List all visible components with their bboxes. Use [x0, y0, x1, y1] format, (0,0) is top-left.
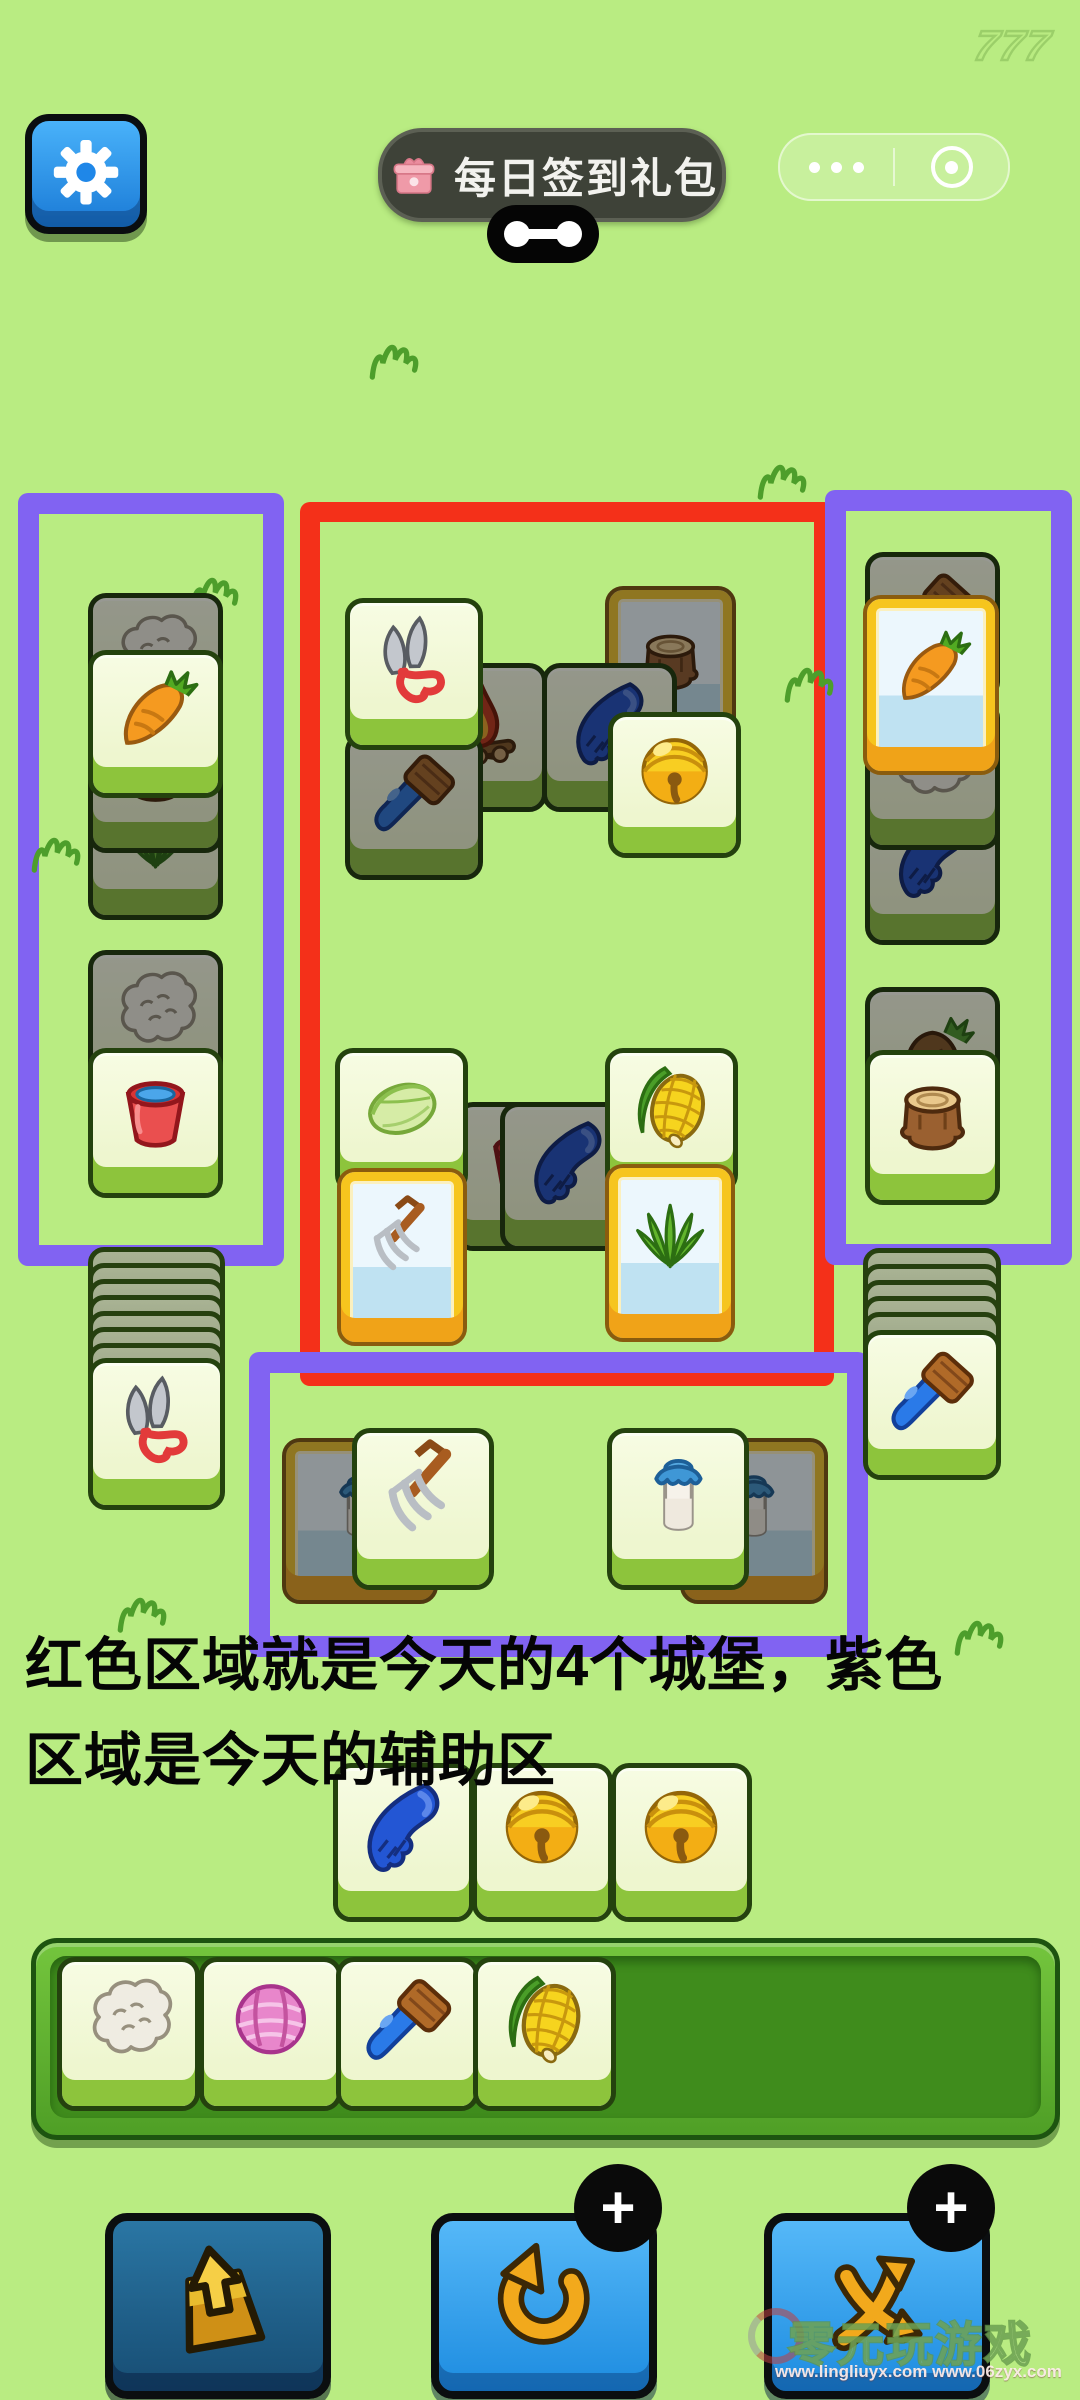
gear-icon: [45, 132, 127, 213]
tile-stump[interactable]: [865, 1050, 1000, 1205]
target-icon: [931, 146, 973, 188]
plus-icon: +: [600, 2178, 635, 2238]
brush-icon: [360, 742, 468, 843]
corn-icon: [620, 1057, 723, 1157]
tile-carrot[interactable]: [88, 650, 223, 798]
undo-add-badge[interactable]: +: [574, 2164, 662, 2252]
grass-tuft-icon: [108, 1565, 196, 1625]
carrot-icon: [103, 659, 208, 761]
more-dots-icon: [809, 162, 864, 173]
plus-icon: +: [933, 2178, 968, 2238]
game-screen: 777 每日签到礼包 红色区域就是今天的4个城堡，紫色 区域是今天的辅助区 +: [0, 0, 1080, 2400]
grass-tuft-icon: [775, 635, 863, 695]
tile-brush[interactable]: [345, 733, 483, 880]
slot-tile-brush: [336, 1957, 479, 2111]
guide-caption-line2: 区域是今天的辅助区: [25, 1713, 943, 1808]
bucket-icon: [103, 1057, 208, 1161]
bone-toggle[interactable]: [487, 205, 599, 263]
guide-caption-line1: 红色区域就是今天的4个城堡，紫色: [25, 1618, 943, 1713]
undo-icon: [466, 2236, 621, 2362]
corn-icon: [489, 1966, 601, 2073]
tile-pitchfork-framed[interactable]: [337, 1168, 467, 1346]
tile-bell[interactable]: [608, 712, 741, 858]
brush-icon: [878, 1339, 986, 1443]
wool-icon: [73, 1966, 185, 2073]
shuffle-add-badge[interactable]: +: [907, 2164, 995, 2252]
tile-bucket[interactable]: [88, 1048, 223, 1198]
gift-icon: [386, 147, 442, 203]
tile-pitchfork[interactable]: [352, 1428, 494, 1590]
milk-icon: [623, 1438, 734, 1550]
grass-tuft-icon: [360, 312, 448, 372]
slot-tile-wool: [57, 1957, 200, 2111]
yarn-icon: [215, 1966, 327, 2073]
tile-milk[interactable]: [607, 1428, 749, 1590]
grass-tuft-icon: [945, 1588, 1033, 1648]
tile-scissors[interactable]: [88, 1358, 225, 1510]
settings-button[interactable]: [25, 114, 147, 234]
grass-icon: [625, 1185, 715, 1287]
pitchfork-icon: [357, 1189, 447, 1291]
daily-signin-label: 每日签到礼包: [454, 145, 718, 206]
score-watermark: 777: [971, 22, 1056, 70]
tile-brush[interactable]: [863, 1330, 1001, 1480]
pitchfork-icon: [368, 1438, 479, 1550]
tile-scissors[interactable]: [345, 598, 483, 750]
grass-tuft-icon: [748, 432, 836, 492]
carrot-icon: [884, 616, 979, 719]
scissors-icon: [360, 607, 468, 712]
bag-icon: [140, 2236, 295, 2362]
slot-tile-corn: [473, 1957, 616, 2111]
wool-icon: [103, 959, 208, 1061]
miniprogram-capsule: [778, 133, 1010, 201]
bell-icon: [623, 721, 726, 822]
pop-out-button[interactable]: [105, 2213, 331, 2399]
scissors-icon: [103, 1367, 210, 1472]
brush-icon: [352, 1966, 464, 2073]
stump-icon: [880, 1059, 985, 1166]
more-button[interactable]: [780, 135, 893, 199]
tile-carrot-framed[interactable]: [863, 595, 999, 775]
footer-urls-watermark: www.lingliuyx.com www.06zyx.com: [775, 2362, 1065, 2382]
slot-tile-yarn: [199, 1957, 342, 2111]
exit-button[interactable]: [895, 135, 1008, 199]
tile-grass-framed[interactable]: [605, 1164, 735, 1342]
guide-caption: 红色区域就是今天的4个城堡，紫色 区域是今天的辅助区: [25, 1618, 943, 1808]
cabbage-icon: [350, 1057, 453, 1157]
